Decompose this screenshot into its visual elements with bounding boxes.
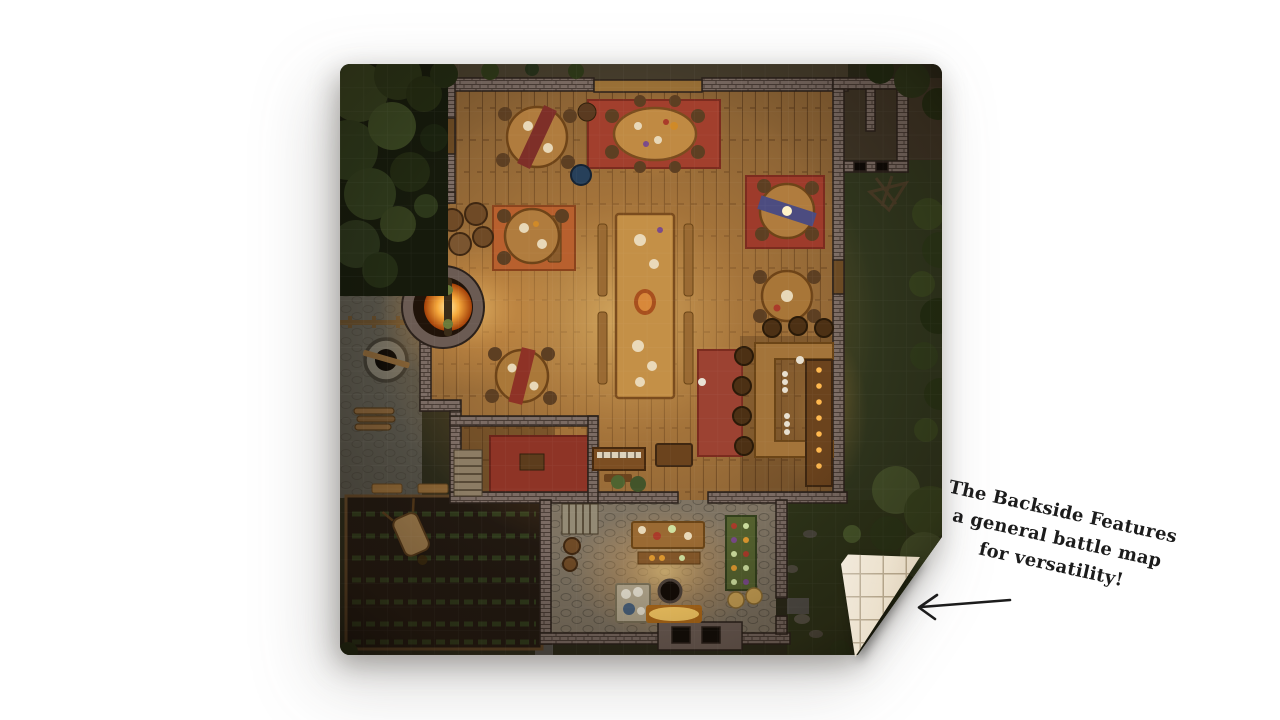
backside-note: The Backside Features a general battle m… bbox=[930, 473, 1184, 604]
arrow-icon bbox=[905, 587, 1017, 623]
battle-mat bbox=[340, 64, 942, 655]
product-image-stage: The Backside Features a general battle m… bbox=[0, 0, 1280, 720]
